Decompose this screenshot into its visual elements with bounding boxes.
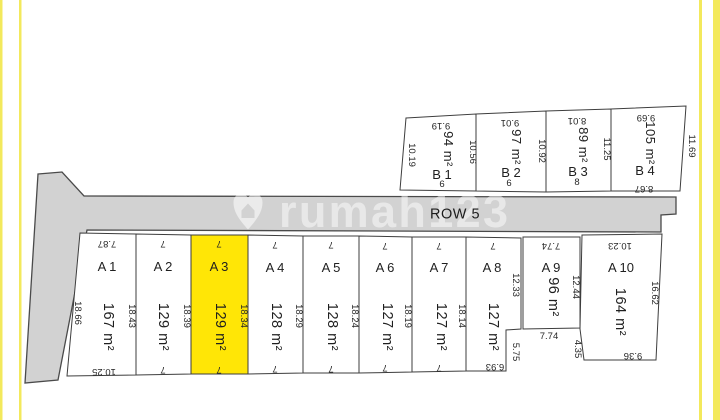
plot-a2-name: A 2	[154, 259, 173, 274]
plot-a3-name: A 3	[210, 259, 229, 274]
road-label: ROW 5	[430, 207, 480, 223]
plot-b2-area: 97 m²	[509, 129, 524, 165]
plot-a2-dim-1: 18.39	[181, 304, 192, 328]
plot-a8-name: A 8	[483, 260, 502, 275]
plot-a6-area: 127 m²	[379, 303, 395, 351]
plot-a4-area: 128 m²	[268, 303, 284, 351]
plot-a3-area: 129 m²	[212, 303, 228, 351]
plot-a4-dim-0: 7	[272, 239, 277, 250]
plot-a6-dim-0: 7	[382, 240, 387, 251]
plot-a10-area: 164 m²	[612, 288, 628, 336]
plot-a8-area: 127 m²	[485, 303, 501, 351]
plot-a8-dim-3: 6.93	[486, 361, 505, 372]
plot-b2-dim-0: 9.01	[501, 117, 520, 128]
plot-a5-area: 128 m²	[324, 303, 340, 351]
plot-a2-dim-2: 7	[160, 364, 165, 375]
plot-a10-dim-0: 10.23	[608, 240, 632, 251]
plot-a1-name: A 1	[98, 259, 117, 274]
plot-a1-dim-2: 18.43	[126, 304, 137, 328]
plot-b3-dim-0: 8.01	[568, 115, 587, 126]
plot-b3-dim-1: 11.25	[601, 137, 612, 160]
plot-a3-dim-1: 18.34	[238, 304, 249, 328]
plot-b1-area: 94 m²	[441, 131, 456, 167]
plot-b4-dim-1: 11.69	[686, 134, 697, 157]
plot-b1-dim-3: 6	[439, 179, 444, 190]
plot-a4-dim-1: 18.29	[293, 304, 304, 328]
plot-a8-dim-2: 5.75	[510, 343, 521, 362]
plot-a2-area: 129 m²	[155, 303, 171, 351]
plot-b4-area: 105 m²	[643, 121, 658, 165]
plot-a6-dim-1: 18.19	[402, 304, 413, 328]
plot-a8-dim-0: 7	[490, 240, 495, 251]
plot-a9-name: A 9	[542, 260, 561, 275]
plot-a7-dim-0: 7	[436, 240, 441, 251]
plot-b4-dim-0: 9.69	[637, 112, 656, 123]
plot-a5-dim-2: 7	[328, 363, 333, 374]
plot-a7-area: 127 m²	[433, 303, 449, 351]
plot-a7-dim-1: 18.14	[456, 304, 467, 328]
plot-a7-dim-2: 7	[436, 362, 441, 373]
plot-b2-dim-1: 10.92	[536, 139, 547, 163]
plot-a4-name: A 4	[266, 260, 285, 275]
plot-a2-dim-0: 7	[160, 238, 165, 249]
plot-b2-dim-2: 6	[506, 178, 511, 189]
siteplan-canvas: rumah123 ROW 5 A 1167 m²7.8718.6618.4310…	[0, 0, 720, 420]
plot-b1-dim-1: 10.19	[406, 143, 417, 167]
plot-a9-dim-2: 7.74	[540, 331, 559, 342]
plot-b3-area: 89 m²	[576, 127, 591, 163]
plot-b4-name: B 4	[635, 163, 655, 178]
plot-a10-dim-3: 9.36	[624, 350, 643, 361]
frame-line-right-inner	[699, 0, 702, 420]
plot-a6-name: A 6	[376, 260, 395, 275]
plot-a10-name: A 10	[608, 260, 634, 275]
plot-a5-dim-0: 7	[328, 239, 333, 250]
plot-a5-dim-1: 18.24	[349, 304, 360, 328]
plot-a3-dim-2: 7	[216, 364, 221, 375]
plot-a9-dim-1: 12.44	[570, 275, 581, 299]
plot-a7-name: A 7	[430, 260, 449, 275]
plot-a1-dim-1: 18.66	[72, 301, 83, 325]
plot-b1-dim-0: 9.19	[432, 120, 451, 131]
plot-b3-dim-2: 8	[574, 177, 579, 188]
plot-a1-dim-3: 10.25	[92, 366, 116, 377]
plot-a8-dim-1: 12.33	[510, 273, 521, 297]
siteplan-svg: rumah123 ROW 5 A 1167 m²7.8718.6618.4310…	[0, 0, 720, 420]
plot-a10-dim-2: 4.35	[572, 340, 583, 359]
frame-line-right-outer	[713, 0, 720, 420]
plot-a6-dim-2: 7	[382, 362, 387, 373]
plot-a9-area: 96 m²	[545, 277, 561, 317]
frame-line-left-inner	[19, 0, 22, 420]
frame-line-left-outer	[0, 0, 3, 420]
plot-a3-dim-0: 7	[216, 238, 221, 249]
plot-b4-dim-2: 8.67	[635, 183, 654, 194]
plot-a1-dim-0: 7.87	[98, 238, 117, 249]
plot-a10-dim-1: 16.62	[649, 281, 660, 305]
plot-a4-dim-2: 7	[272, 363, 277, 374]
plot-a5-name: A 5	[322, 260, 341, 275]
plot-a9-dim-0: 7.74	[542, 240, 561, 251]
plot-a1-area: 167 m²	[100, 303, 116, 351]
